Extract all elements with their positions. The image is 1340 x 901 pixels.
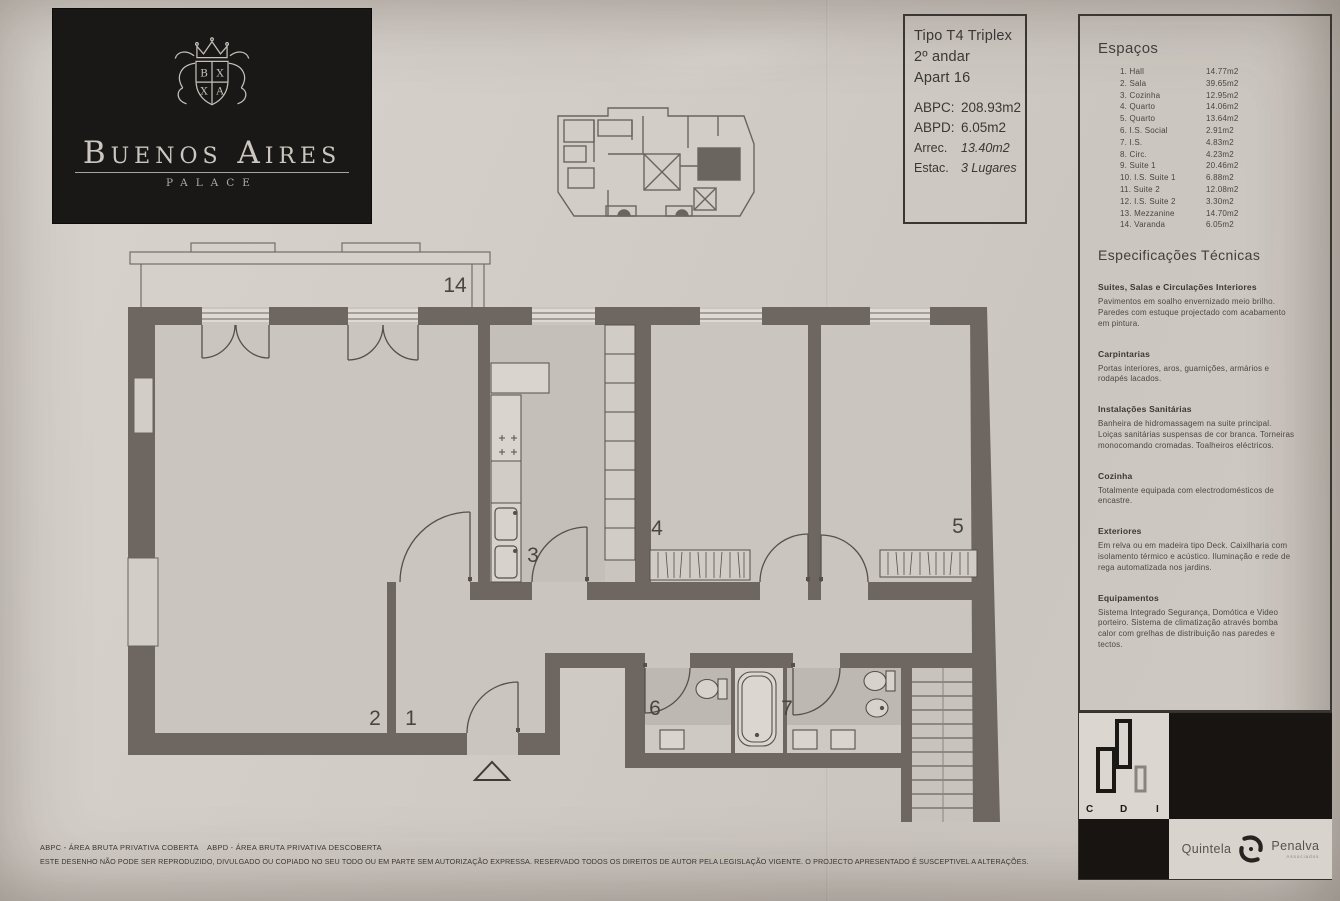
metric-arrec: Arrec.13.40m2 bbox=[914, 138, 1017, 158]
unit-apartment: Apart 16 bbox=[914, 68, 1017, 89]
list-item: 8. Circ.4.23m2 bbox=[1120, 149, 1310, 161]
svg-text:X: X bbox=[200, 85, 208, 97]
cdi-logo-cell: C D I bbox=[1079, 713, 1169, 819]
balcony bbox=[130, 243, 490, 307]
svg-text:C: C bbox=[1086, 804, 1093, 815]
list-item: 4. Quarto14.06m2 bbox=[1120, 101, 1310, 113]
copyright-disclaimer: ESTE DESENHO NÃO PODE SER REPRODUZIDO, D… bbox=[40, 857, 1029, 866]
spec-section: Instalações Sanitárias Banheira de hidro… bbox=[1098, 404, 1312, 451]
spec-section: Exteriores Em relva ou em madeira tipo D… bbox=[1098, 526, 1312, 573]
svg-text:I: I bbox=[1156, 804, 1159, 815]
metric-abpd: ABPD:6.05m2 bbox=[914, 118, 1017, 138]
spec-section: Suites, Salas e Circulações Interiores P… bbox=[1098, 282, 1312, 329]
label-is-social: 6 bbox=[649, 697, 661, 720]
list-item: 13. Mezzanine14.70m2 bbox=[1120, 208, 1310, 220]
metric-abpc: ABPC:208.93m2 bbox=[914, 98, 1017, 118]
list-item: 5. Quarto13.64m2 bbox=[1120, 113, 1310, 125]
agency-tagline: Associados bbox=[1286, 854, 1319, 859]
entrance-arrow-icon bbox=[475, 762, 509, 780]
black-panel bbox=[1169, 713, 1332, 819]
list-item: 6. I.S. Social2.91m2 bbox=[1120, 125, 1310, 137]
list-item: 14. Varanda6.05m2 bbox=[1120, 219, 1310, 231]
specs-title: Especificações Técnicas bbox=[1098, 247, 1330, 263]
spec-section: Carpintarias Portas interiores, aros, gu… bbox=[1098, 349, 1312, 386]
label-quarto-4: 4 bbox=[651, 517, 663, 540]
key-plan-diagram bbox=[548, 96, 763, 228]
highlighted-unit bbox=[698, 148, 740, 180]
spaces-and-specs-panel: Espaços 1. Hall14.77m2 2. Sala39.65m2 3.… bbox=[1078, 14, 1332, 712]
label-hall: 1 bbox=[405, 707, 417, 730]
list-item: 3. Cozinha12.95m2 bbox=[1120, 90, 1310, 102]
legend-abpc: ABPC - ÁREA BRUTA PRIVATIVA COBERTA bbox=[40, 843, 199, 852]
unit-type: Tipo T4 Triplex bbox=[914, 26, 1017, 47]
svg-text:B: B bbox=[200, 67, 208, 79]
label-cozinha: 3 bbox=[527, 544, 539, 567]
crest-icon: BX XA bbox=[137, 35, 287, 133]
floor-plan: 14 2 1 3 4 5 6 7 bbox=[115, 230, 1015, 855]
espacos-title: Espaços bbox=[1098, 40, 1330, 57]
logo-title: Buenos Aires bbox=[83, 135, 341, 171]
unit-metrics: ABPC:208.93m2 ABPD:6.05m2 Arrec.13.40m2 … bbox=[914, 98, 1017, 178]
list-item: 7. I.S.4.83m2 bbox=[1120, 137, 1310, 149]
agency-name-right: Penalva bbox=[1271, 839, 1319, 853]
spec-section: Cozinha Totalmente equipada com electrod… bbox=[1098, 471, 1312, 508]
label-quarto-5: 5 bbox=[952, 515, 964, 538]
logo-rule bbox=[75, 172, 349, 173]
svg-text:D: D bbox=[1120, 804, 1127, 815]
legend-abpd: ABPD - ÁREA BRUTA PRIVATIVA DESCOBERTA bbox=[207, 843, 382, 852]
svg-text:A: A bbox=[215, 85, 224, 97]
espacos-list: 1. Hall14.77m2 2. Sala39.65m2 3. Cozinha… bbox=[1120, 66, 1310, 231]
list-item: 12. I.S. Suite 23.30m2 bbox=[1120, 196, 1310, 208]
unit-floor: 2º andar bbox=[914, 47, 1017, 68]
agency-swirl-icon bbox=[1236, 834, 1266, 864]
cdi-logo-icon: C D I bbox=[1079, 713, 1169, 819]
label-varanda: 14 bbox=[443, 274, 467, 297]
spec-section: Equipamentos Sistema Integrado Segurança… bbox=[1098, 593, 1312, 651]
list-item: 11. Suite 212.08m2 bbox=[1120, 184, 1310, 196]
buenos-aires-logo-box: BX XA Buenos Aires PALACE bbox=[52, 8, 372, 224]
list-item: 10. I.S. Suite 16.88m2 bbox=[1120, 172, 1310, 184]
unit-info-box: Tipo T4 Triplex 2º andar Apart 16 ABPC:2… bbox=[903, 14, 1027, 224]
paper-wrinkle bbox=[596, 2, 863, 108]
agency-name-left: Quintela bbox=[1182, 842, 1232, 856]
logo-subtitle: PALACE bbox=[166, 177, 258, 189]
list-item: 9. Suite 120.46m2 bbox=[1120, 160, 1310, 172]
black-panel bbox=[1079, 819, 1169, 879]
agency-logo-cell: Quintela Penalva Associados bbox=[1169, 819, 1332, 879]
agency-name-right-wrap: Penalva Associados bbox=[1271, 839, 1319, 859]
brand-grid: C D I Quintela Penalva Associados bbox=[1078, 712, 1332, 880]
list-item: 2. Sala39.65m2 bbox=[1120, 78, 1310, 90]
metric-estac: Estac.3 Lugares bbox=[914, 158, 1017, 178]
label-is-7: 7 bbox=[781, 697, 793, 720]
label-sala: 2 bbox=[369, 707, 381, 730]
list-item: 1. Hall14.77m2 bbox=[1120, 66, 1310, 78]
svg-text:X: X bbox=[216, 67, 224, 79]
